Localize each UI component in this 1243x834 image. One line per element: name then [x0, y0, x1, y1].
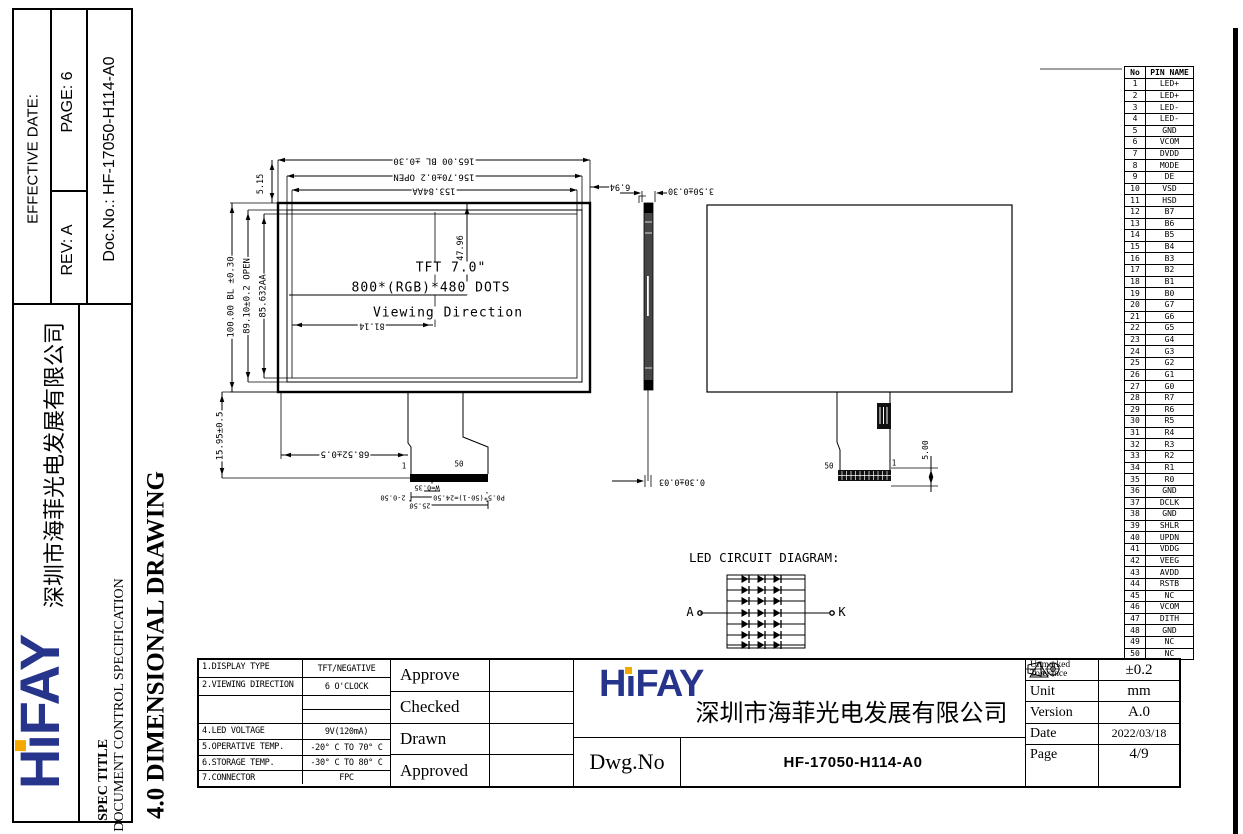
cathode-terminal [830, 611, 834, 615]
pin-row: 18B1 [1125, 277, 1193, 289]
panel-title-line2: 800*(RGB)*480 DOTS [351, 282, 512, 295]
dim-open-width-label: 156.70±0.2 OPEN [392, 172, 475, 181]
generated-linework [220, 158, 934, 649]
roughness-triangle-icon: 1.0 [1026, 660, 1052, 679]
back-view-rect [707, 205, 1012, 392]
front-pin1-label: 1 [401, 462, 408, 470]
pin-row: 23G4 [1125, 335, 1193, 347]
pin-row: 2LED+ [1125, 91, 1193, 103]
dim-aa-height-label: 85.632AA [260, 273, 269, 318]
sign-label: Drawn [391, 724, 489, 756]
led-circuit-box [727, 575, 805, 648]
pin-row: 10VSD [1125, 184, 1193, 196]
pin-table-header: No PIN NAME [1125, 67, 1193, 79]
pin-row: 11HSD [1125, 195, 1193, 207]
pin-row: 31R4 [1125, 428, 1193, 440]
pin-row: 33R2 [1125, 451, 1193, 463]
hifay-logo-titleblock: HıFAY [599, 665, 704, 703]
dim-right-offset-label: 6.94 [609, 182, 631, 191]
spec-row: 5.OPERATIVE TEMP.-20° C TO 70° C [199, 740, 390, 756]
pin-row: 13B6 [1125, 219, 1193, 231]
page-edge-bar [1233, 28, 1238, 834]
front-active-area-rect [292, 214, 577, 378]
dwg-no-label: Dwg.No [574, 738, 681, 786]
pin-no-header: No [1125, 67, 1146, 78]
pin-row: 43AVDD [1125, 567, 1193, 579]
company-banner: HıFAY 深圳市海菲光电发展有限公司 [574, 660, 1025, 738]
pin-row: 34R1 [1125, 463, 1193, 475]
signature-blanks [490, 660, 574, 786]
led-anode-label: A [685, 606, 694, 618]
spec-summary-table: 1.DISPLAY TYPETFT/NEGATIVE2.VIEWING DIRE… [199, 660, 391, 786]
pin-row: 39SHLR [1125, 521, 1193, 533]
pin-row: 5GND [1125, 126, 1193, 138]
info-row: Page4/9 [1026, 745, 1179, 765]
front-outline-rect [278, 203, 590, 392]
spec-row: 7.CONNECTORFPC [199, 771, 390, 784]
pin-row: 17B2 [1125, 265, 1193, 277]
led-diagram-title: LED CIRCUIT DIAGRAM: [688, 552, 841, 565]
info-table: Unmarked Tolerance±0.2UnitmmVersionA.0Da… [1026, 660, 1179, 786]
panel-title-line1: TFT 7.0" [415, 262, 488, 275]
dim-pitch-label: P0.5*(50-1)=24.50 [432, 494, 506, 501]
logo-orange-dot [625, 667, 633, 675]
brand-logo: HıFAY [12, 635, 68, 789]
dim-fpc-thickness-label: 0.30±0.03 [658, 477, 706, 486]
sign-label: Approve [391, 660, 489, 692]
pin-row: 46VCOM [1125, 602, 1193, 614]
dim-outline-width-label: 165.00 BL ±0.30 [392, 156, 475, 165]
dim-thickness-label: 3.50±0.30 [667, 186, 715, 195]
signature-cell [490, 755, 573, 786]
pin-row: 27G0 [1125, 381, 1193, 393]
front-fpc-connector [410, 474, 488, 482]
company-name-titleblock: 深圳市海菲光电发展有限公司 [684, 700, 1019, 729]
spec-row: 1.DISPLAY TYPETFT/NEGATIVE [199, 660, 390, 678]
title-block-center: HıFAY 深圳市海菲光电发展有限公司 Dwg.No HF-17050-H114… [574, 660, 1026, 786]
pin-row: 25G2 [1125, 358, 1193, 370]
pin-row: 7DVDD [1125, 149, 1193, 161]
pin-row: 26G1 [1125, 370, 1193, 382]
pin-row: 3LED- [1125, 102, 1193, 114]
pin-row: 15B4 [1125, 242, 1193, 254]
led-cathode-label: K [837, 606, 846, 618]
pin-row: 44RSTB [1125, 579, 1193, 591]
pin-row: 9DE [1125, 172, 1193, 184]
dim-outline-height-label: 100.00 BL ±0.30 [228, 255, 237, 338]
front-pin50-label: 50 [453, 460, 464, 468]
dim-fpc-width-label: 25.50 [408, 502, 431, 509]
logo-orange-dot [15, 740, 26, 751]
pin-row: 48GND [1125, 625, 1193, 637]
svg-text:1.0: 1.0 [1033, 670, 1045, 678]
sign-label: Approved [391, 755, 489, 786]
signature-labels: ApproveCheckedDrawnApproved [391, 660, 490, 786]
projection-symbols [1026, 765, 1099, 786]
info-row: Date2022/03/18 [1026, 724, 1179, 745]
roughness-symbol: 1.0 [1099, 765, 1179, 786]
signature-cell [490, 660, 573, 692]
pin-row: 21G6 [1125, 312, 1193, 324]
pin-row: 24G3 [1125, 346, 1193, 358]
back-pin50-label: 50 [823, 462, 834, 470]
spec-row: 2.VIEWING DIRECTION6 O'CLOCK [199, 678, 390, 696]
pin-row: 20G7 [1125, 300, 1193, 312]
pin-row: 12B7 [1125, 207, 1193, 219]
pin-row: 35R0 [1125, 474, 1193, 486]
pin-row: 19B0 [1125, 288, 1193, 300]
spec-row: 4.LED VOLTAGE9V(120mA) [199, 724, 390, 740]
pin-row: 40UPDN [1125, 532, 1193, 544]
pin-row: 38GND [1125, 509, 1193, 521]
back-pin1-label: 1 [891, 459, 898, 467]
dim-end-margin-label: 2-0.50 [379, 494, 406, 501]
pin-row: 22G5 [1125, 323, 1193, 335]
pin-row: 37DCLK [1125, 498, 1193, 510]
dim-connector-label: 5.00 [922, 439, 930, 460]
pin-row: 8MODE [1125, 160, 1193, 172]
info-row: Unitmm [1026, 681, 1179, 702]
title-block: 1.DISPLAY TYPETFT/NEGATIVE2.VIEWING DIRE… [197, 658, 1181, 788]
pin-row: 16B3 [1125, 253, 1193, 265]
pin-row: 49NC [1125, 637, 1193, 649]
dim-open-height-label: 89.10±0.2 OPEN [244, 257, 253, 335]
dim-tail-length-label: 15.95±0.5 [217, 411, 226, 462]
spec-row [199, 696, 390, 724]
dim-top-offset-label: 5.15 [257, 173, 266, 195]
panel-title-line3: Viewing Direction [372, 307, 524, 320]
signature-cell [490, 724, 573, 756]
pin-row: 1LED+ [1125, 79, 1193, 91]
sign-label: Checked [391, 692, 489, 724]
pin-row: 42VEEG [1125, 556, 1193, 568]
symbols-row: 1.0 [1026, 765, 1179, 786]
pin-row: 32R3 [1125, 439, 1193, 451]
dim-aa-width-label: 153.84AA [411, 186, 456, 195]
pin-row: 30R5 [1125, 416, 1193, 428]
pin-name-header: PIN NAME [1146, 67, 1193, 78]
pin-table-body: 1LED+2LED+3LED-4LED-5GND6VCOM7DVDD8MODE9… [1125, 79, 1193, 659]
pin-row: 6VCOM [1125, 137, 1193, 149]
pin-row: 45NC [1125, 591, 1193, 603]
info-row: VersionA.0 [1026, 702, 1179, 723]
dim-center-x-label: 81.14 [358, 321, 386, 330]
dim-trace-width-label: W=0.35 [413, 484, 440, 491]
pin-row: 47DITH [1125, 614, 1193, 626]
pin-row: 28R7 [1125, 393, 1193, 405]
pin-row: 41VDDG [1125, 544, 1193, 556]
dwg-no-value: HF-17050-H114-A0 [681, 738, 1025, 786]
dim-aa-center-label: 47.96 [457, 234, 466, 262]
front-open-rect [287, 210, 582, 382]
pin-row: 36GND [1125, 486, 1193, 498]
pin-row: 14B5 [1125, 230, 1193, 242]
signature-cell [490, 692, 573, 724]
dim-tail-offset-label: 68.52±0.5 [320, 449, 371, 458]
pin-row: 4LED- [1125, 114, 1193, 126]
spec-row: 6.STORAGE TEMP.-30° C TO 80° C [199, 756, 390, 771]
pin-row: 29R6 [1125, 405, 1193, 417]
spec-drawing-page: 165.00 BL ±0.30 156.70±0.2 OPEN 153.84AA… [0, 0, 1243, 834]
pin-table: No PIN NAME 1LED+2LED+3LED-4LED-5GND6VCO… [1124, 66, 1194, 660]
